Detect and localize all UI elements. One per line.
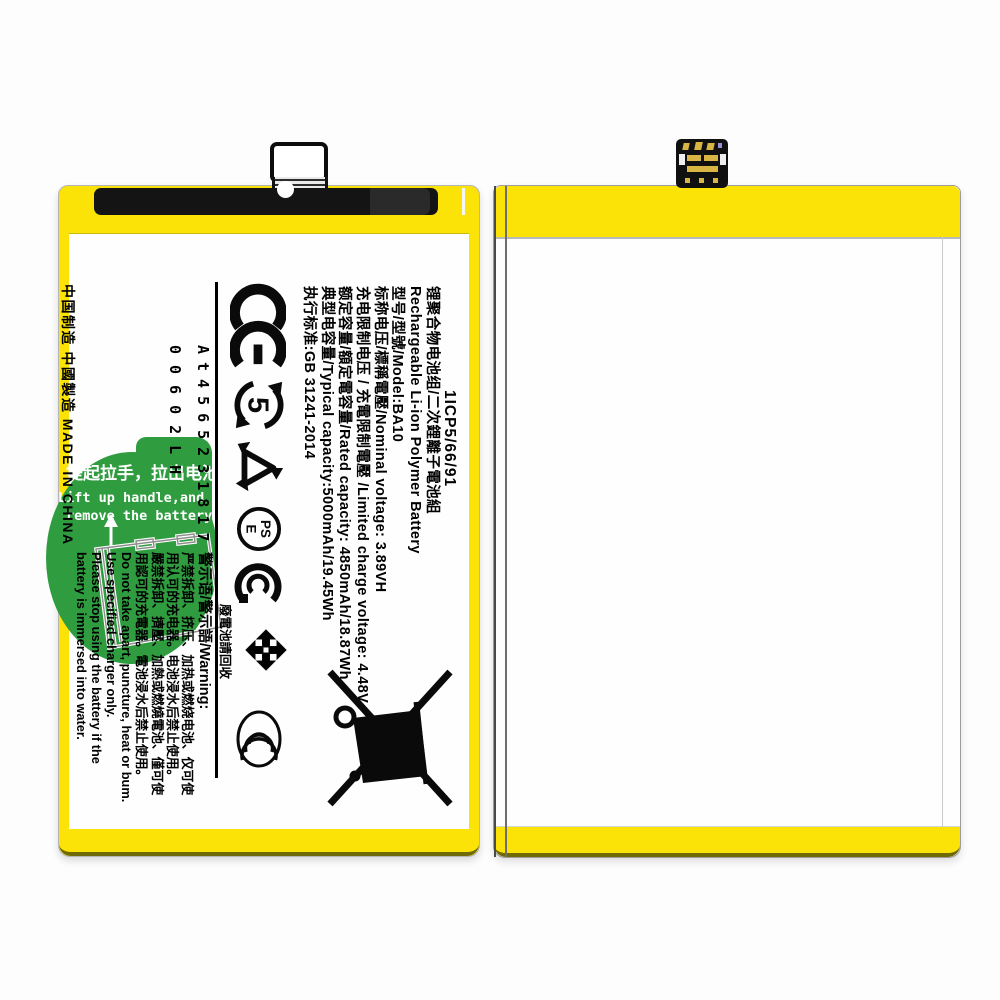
cell-part-number: 1ICP5/66/91 <box>440 390 458 703</box>
bsmi-mark-icon <box>232 560 284 612</box>
svg-text:E: E <box>244 525 259 534</box>
crossed-wheeled-bin-icon <box>322 664 458 812</box>
warning-line: Use specified charger only. <box>104 552 119 802</box>
made-in-china-line: 中国制造 中國製造 MADE IN CHINA <box>58 284 78 546</box>
battery-spec-label: 1ICP5/66/91 锂聚合物电池组/二次鋰離子電池組 Rechargeabl… <box>58 272 468 812</box>
typical-capacity-line: 典型电容量/Typical capacity:5000mAh/19.45Wh <box>317 286 335 703</box>
battery-bottom-yellow-band <box>59 829 479 856</box>
battery-recycling-icon <box>244 628 288 672</box>
model-line: 型号/型號/Model:BA10 <box>388 286 406 703</box>
battery-back <box>493 185 961 858</box>
nominal-voltage-line: 标称电压/標稱電壓/Nominal voltage: 3.89VH <box>370 286 388 703</box>
ce-mark-icon <box>230 282 286 368</box>
pse-mark-icon: PS E <box>236 506 282 552</box>
warning-line: 用認可的充電器。電池浸水后禁止使用。 <box>134 552 149 802</box>
battery-type-en: Rechargeable Li-ion Polymer Battery <box>405 286 423 703</box>
serial-number-line1: At4565231817 <box>194 345 212 549</box>
svg-text:5: 5 <box>241 397 273 413</box>
tape-shading <box>370 188 430 215</box>
spec-block: 1ICP5/66/91 锂聚合物电池组/二次鋰離子電池組 Rechargeabl… <box>300 286 458 703</box>
battery-back-left-edge-inner <box>505 186 507 857</box>
warning-block: 警示语/警示語/Warning: 严禁拆卸、挤压、加热或燃烧电池、仅可使 用认可… <box>73 552 216 802</box>
rated-capacity-line: 额定容量/額定電容量/Rated capacity: 4850mAh/18.87… <box>335 286 353 703</box>
svg-text:PS: PS <box>258 520 273 538</box>
warning-line: 严禁拆卸、挤压、加热或燃烧电池、仅可使 <box>180 552 195 802</box>
battery-back-top-yellow-band <box>494 186 960 239</box>
flex-connector-gold-pads <box>676 139 728 188</box>
mobius-recycle-icon <box>232 440 284 496</box>
serial-number-line2: 00602LH <box>166 345 184 485</box>
connector-hole <box>277 181 294 198</box>
warning-header: 警示语/警示語/Warning: <box>195 552 216 802</box>
warning-line: 嚴禁拆卸、擠壓、加熱或燃燒電池、僅可使 <box>149 552 164 802</box>
warning-line: battery is immersed into water. <box>73 552 88 802</box>
certification-icons: 5 PS E <box>226 272 290 812</box>
efup-recycle-icon: 5 <box>232 378 286 432</box>
battery-back-right-edge-line <box>942 237 943 827</box>
ccc-mark-icon <box>236 710 282 768</box>
warning-line: Please stop using the battery if the <box>89 552 104 802</box>
charge-voltage-line: 充电限制电压 / 充電限制電壓 /Limited charge voltage:… <box>352 286 370 703</box>
tape-gap <box>462 188 465 215</box>
black-adhesive-tape <box>94 188 438 215</box>
warning-line: 用认可的充电器。电池浸水后禁止使用。 <box>165 552 180 802</box>
battery-recycling-caption: 廢電池請回收 <box>217 604 236 679</box>
battery-back-bottom-yellow-band <box>494 826 960 857</box>
battery-back-left-edge <box>494 186 496 857</box>
warning-line: Do not take apart, puncture, heat or bum… <box>119 552 134 802</box>
standard-line: 执行标准:GB 31241-2014 <box>300 286 318 703</box>
product-photo-vivo-ba10-battery: 提起拉手，拉出电池 Lift up handle,and remove the … <box>0 0 1000 1000</box>
battery-type-cn: 锂聚合物电池组/二次鋰離子電池組 <box>423 286 441 703</box>
